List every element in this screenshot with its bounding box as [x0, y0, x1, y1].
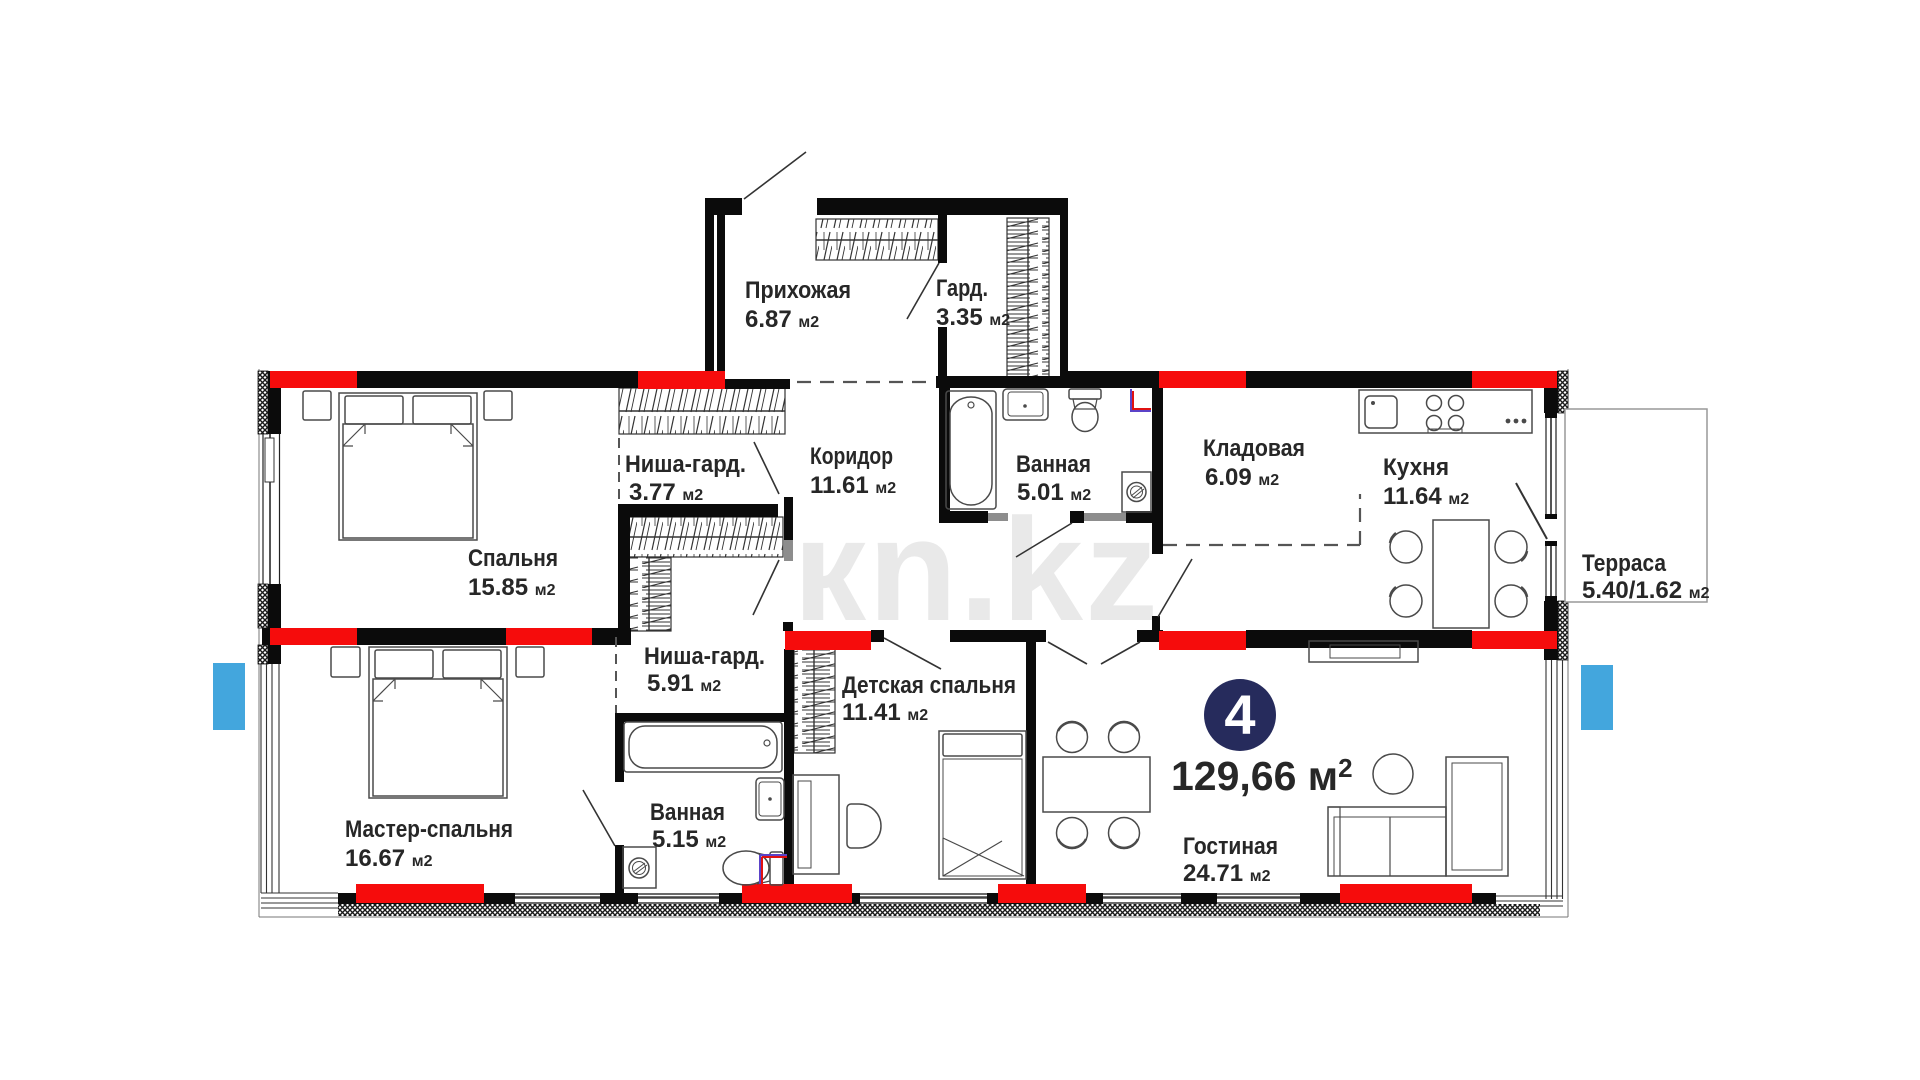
- svg-text:Гард.: Гард.: [936, 275, 988, 302]
- svg-text:Гостиная: Гостиная: [1183, 833, 1278, 860]
- svg-text:Ниша-гард.: Ниша-гард.: [644, 643, 765, 670]
- svg-text:Коридор: Коридор: [810, 443, 893, 470]
- svg-text:Ниша-гард.: Ниша-гард.: [625, 451, 746, 478]
- svg-text:Ванная: Ванная: [1016, 451, 1091, 478]
- svg-text:Прихожая: Прихожая: [745, 277, 851, 304]
- svg-text:Спальня: Спальня: [468, 545, 558, 572]
- svg-text:Ванная: Ванная: [650, 799, 725, 826]
- svg-text:Детская спальня: Детская спальня: [842, 672, 1016, 699]
- svg-text:4: 4: [1224, 683, 1255, 746]
- svg-text:Мастер-спальня: Мастер-спальня: [345, 816, 513, 843]
- svg-text:Терраса: Терраса: [1582, 550, 1667, 577]
- svg-text:Кухня: Кухня: [1383, 454, 1449, 481]
- svg-text:Кладовая: Кладовая: [1203, 435, 1305, 462]
- svg-text:129,66 м2: 129,66 м2: [1171, 753, 1353, 799]
